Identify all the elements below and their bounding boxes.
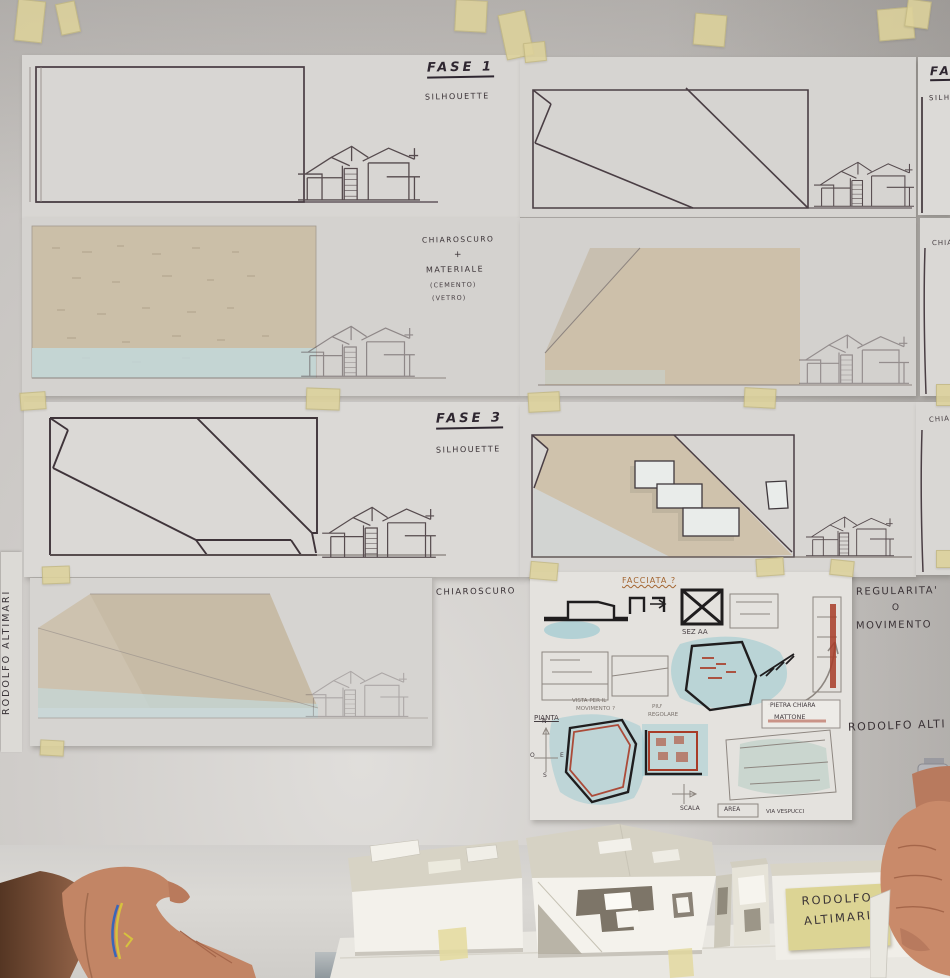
tape-piece — [14, 0, 46, 43]
tape-piece — [693, 13, 728, 48]
tape-piece — [55, 0, 81, 35]
compass-s: S — [543, 772, 547, 779]
label-author-vertical: RODOLFO ALTIMARI — [1, 552, 22, 752]
label-silhouette-1: SILHOUETTE — [425, 92, 490, 102]
label-silh-cut: SILH — [929, 95, 950, 103]
sheet-fase1: FASE 1 SILHOUETTE — [22, 55, 520, 218]
label-chiaroscuro-4: CHIAROSCURO — [436, 587, 516, 598]
label-scala: SCALA — [680, 805, 700, 812]
label-fase2-cut: FA — [930, 65, 950, 82]
label-cemento: (CEMENTO) — [430, 282, 477, 290]
tape-piece — [306, 387, 341, 410]
tape-piece — [829, 559, 855, 577]
drawing-tan-diagonal-2 — [30, 578, 432, 746]
drawing-tan-openings — [520, 402, 916, 577]
label-mattone: MATTONE — [774, 713, 805, 721]
label-pietra-chiara: PIETRA CHIARA — [770, 702, 815, 709]
label-vista-1: VISTA PER IL — [572, 698, 606, 704]
label-chia-cut: CHIA — [932, 240, 950, 248]
label-piu: PIU' — [652, 704, 662, 710]
drawing-sketch-studies — [530, 572, 852, 820]
drawing-tan-diagonal-1 — [520, 218, 916, 396]
tape-piece — [936, 550, 950, 568]
sheet-chiaroscuro-materiale: CHIAROSCURO + MATERIALE (CEMENTO) (VETRO… — [22, 218, 520, 396]
label-chiaroscuro-2: CHIAROSCURO — [422, 235, 495, 245]
right-hand — [870, 758, 950, 978]
label-vetro: (VETRO) — [432, 295, 466, 303]
tape-piece — [743, 387, 776, 409]
label-plus: + — [454, 251, 463, 261]
label-fase1: FASE 1 — [427, 60, 494, 78]
tape-piece — [527, 391, 560, 413]
tape-piece — [42, 566, 71, 585]
tape-piece — [755, 557, 784, 577]
label-vista-2: MOVIMENTO ? — [576, 706, 615, 712]
drawing-material-wall — [22, 218, 520, 396]
tape-piece — [904, 0, 932, 30]
sheet-fase2-cut: FA SILH — [918, 57, 950, 215]
label-silhouette-3: SILHOUETTE — [436, 445, 501, 455]
label-area: AREA — [724, 806, 740, 813]
tape-piece — [40, 739, 65, 756]
label-facciata: FACCIATA ? — [622, 576, 676, 585]
compass-o: O — [530, 752, 535, 759]
tape-piece — [19, 391, 46, 411]
label-materiale: MATERIALE — [426, 265, 484, 275]
tape-piece — [523, 41, 547, 63]
label-fase3: FASE 3 — [436, 411, 503, 429]
compass-n: N — [542, 718, 547, 725]
tape-piece — [529, 561, 558, 581]
sheet-fase3: FASE 3 SILHOUETTE — [24, 402, 520, 577]
tape-piece — [936, 384, 950, 406]
label-regularita: REGULARITA' — [856, 585, 938, 597]
photo-of-design-wall: FASE 1 SILHOUETTE FA SILH — [0, 0, 950, 978]
label-movimento: MOVIMENTO — [856, 619, 932, 631]
drawing-faceted-elevation-1 — [520, 57, 916, 217]
left-hand — [0, 853, 260, 978]
compass-e: E — [560, 752, 564, 759]
label-regolare: REGOLARE — [648, 712, 678, 718]
sheet-sketches: FACCIATA ? SEZ AA VISTA PER IL MOVIMENTO… — [530, 572, 852, 820]
label-author-cut: RODOLFO ALTI — [848, 718, 947, 734]
label-via-vespucci: VIA VESPUCCI — [766, 809, 804, 815]
sheet-chiaroscuro-4: CHIAROSCURO — [30, 578, 432, 746]
sheet-chiaroscuro-left — [520, 218, 916, 396]
drawing-fase1-silhouette — [22, 55, 520, 218]
sheet-chia-cut: CHIA — [920, 218, 950, 396]
model-base-corner — [870, 890, 890, 978]
sheet-fase2-left — [520, 57, 916, 217]
label-o: O — [892, 604, 901, 614]
tape-piece — [454, 0, 488, 33]
label-chiar-cut: CHIAR — [929, 415, 950, 425]
label-sez-aa: SEZ AA — [682, 628, 708, 636]
sheet-chiaroscuro-openings — [520, 402, 916, 577]
